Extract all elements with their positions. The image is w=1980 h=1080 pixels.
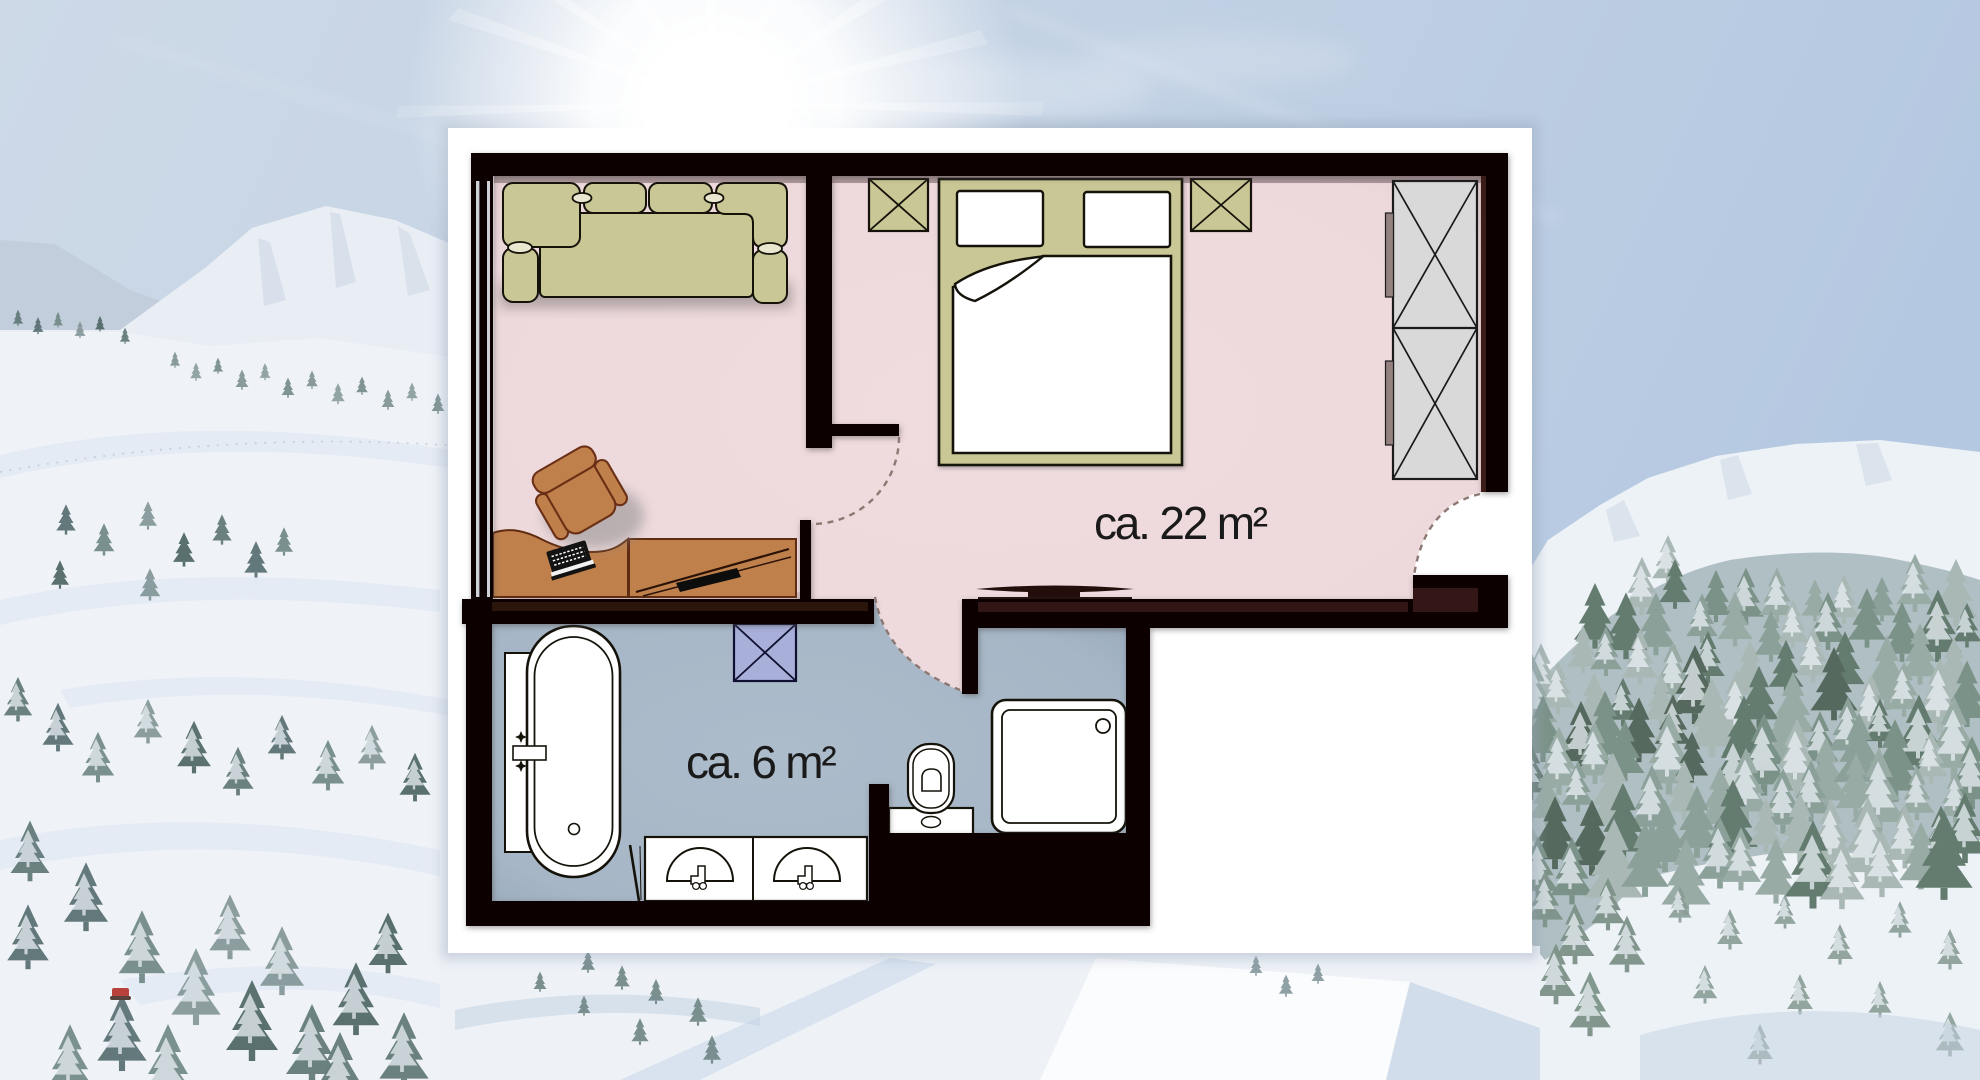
svg-text:ca. 6 m²: ca. 6 m² (686, 736, 836, 788)
svg-text:ca. 22 m²: ca. 22 m² (1094, 497, 1268, 549)
